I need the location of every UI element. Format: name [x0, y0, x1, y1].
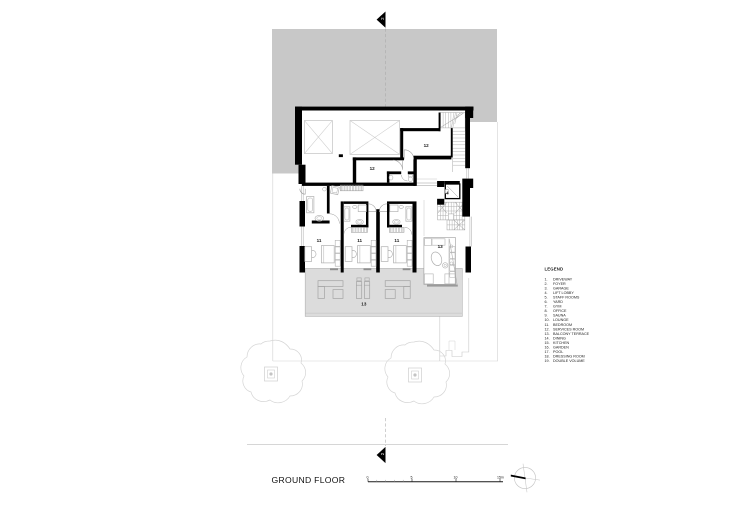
- svg-text:0: 0: [367, 476, 369, 480]
- svg-text:BALCONY TERRACE: BALCONY TERRACE: [553, 332, 590, 336]
- svg-text:GYM: GYM: [553, 305, 561, 309]
- svg-text:STAFF ROOMS: STAFF ROOMS: [553, 296, 580, 300]
- svg-text:11: 11: [317, 238, 322, 243]
- svg-text:GARAGE: GARAGE: [553, 287, 569, 291]
- svg-text:10.: 10.: [545, 318, 550, 322]
- svg-text:DRIVEWAY: DRIVEWAY: [553, 278, 573, 282]
- svg-text:14.: 14.: [545, 336, 550, 340]
- svg-text:11: 11: [357, 238, 362, 243]
- svg-text:DOUBLE VOLUME: DOUBLE VOLUME: [553, 359, 585, 363]
- svg-text:11: 11: [394, 238, 399, 243]
- svg-text:DRESSING ROOM: DRESSING ROOM: [553, 354, 585, 358]
- svg-text:LIFT LOBBY: LIFT LOBBY: [553, 291, 574, 295]
- svg-text:2.: 2.: [545, 282, 548, 286]
- svg-text:12: 12: [370, 166, 376, 171]
- svg-text:15m: 15m: [497, 476, 504, 480]
- svg-text:13: 13: [438, 244, 444, 249]
- svg-text:FOYER: FOYER: [553, 282, 566, 286]
- svg-text:16.: 16.: [545, 345, 550, 349]
- svg-text:GROUND FLOOR: GROUND FLOOR: [272, 475, 346, 485]
- svg-text:LEGEND: LEGEND: [545, 267, 564, 272]
- svg-text:6.: 6.: [545, 300, 548, 304]
- svg-text:18.: 18.: [545, 354, 550, 358]
- svg-text:19.: 19.: [545, 359, 550, 363]
- svg-text:9.: 9.: [545, 314, 548, 318]
- svg-text:5: 5: [411, 476, 413, 480]
- svg-text:KITCHEN: KITCHEN: [553, 341, 570, 345]
- svg-text:15.: 15.: [545, 341, 550, 345]
- svg-text:LOUNGE: LOUNGE: [553, 318, 569, 322]
- svg-text:12.: 12.: [545, 327, 550, 331]
- svg-text:SERVICES ROOM: SERVICES ROOM: [553, 327, 584, 331]
- svg-text:4.: 4.: [545, 291, 548, 295]
- svg-text:5.: 5.: [545, 296, 548, 300]
- svg-text:12: 12: [424, 143, 430, 148]
- svg-text:POOL: POOL: [553, 350, 563, 354]
- svg-text:OFFICE: OFFICE: [553, 309, 567, 313]
- svg-text:8.: 8.: [545, 309, 548, 313]
- svg-text:13: 13: [361, 302, 367, 307]
- svg-text:10: 10: [454, 476, 458, 480]
- svg-text:SAUNA: SAUNA: [553, 314, 566, 318]
- svg-text:YARD: YARD: [553, 300, 563, 304]
- svg-text:DINING: DINING: [553, 336, 566, 340]
- svg-text:1.: 1.: [545, 278, 548, 282]
- svg-text:11.: 11.: [545, 323, 550, 327]
- svg-text:13.: 13.: [545, 332, 550, 336]
- svg-text:3.: 3.: [545, 287, 548, 291]
- svg-text:GARDEN: GARDEN: [553, 345, 569, 349]
- svg-text:7.: 7.: [545, 305, 548, 309]
- svg-text:BEDROOM: BEDROOM: [553, 323, 572, 327]
- svg-text:17.: 17.: [545, 350, 550, 354]
